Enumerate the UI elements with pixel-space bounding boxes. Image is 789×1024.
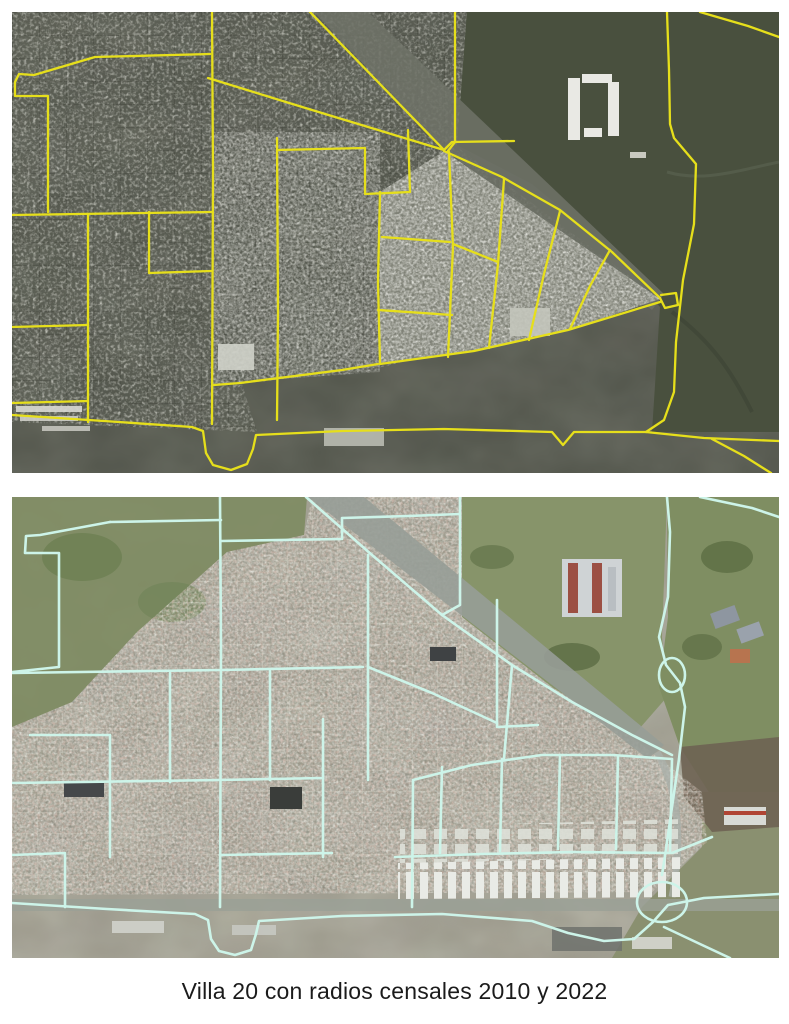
satellite-map-2010 — [12, 12, 779, 473]
figure-caption: Villa 20 con radios censales 2010 y 2022 — [0, 978, 789, 1005]
satellite-map-2022 — [12, 497, 779, 958]
satellite-map-2010-canvas — [12, 12, 779, 473]
hospital-building-2022 — [562, 559, 622, 617]
satellite-map-2022-canvas — [12, 497, 779, 958]
warehouse-red-stripe-2022 — [724, 807, 766, 825]
figure-page: Villa 20 con radios censales 2010 y 2022 — [0, 0, 789, 1024]
